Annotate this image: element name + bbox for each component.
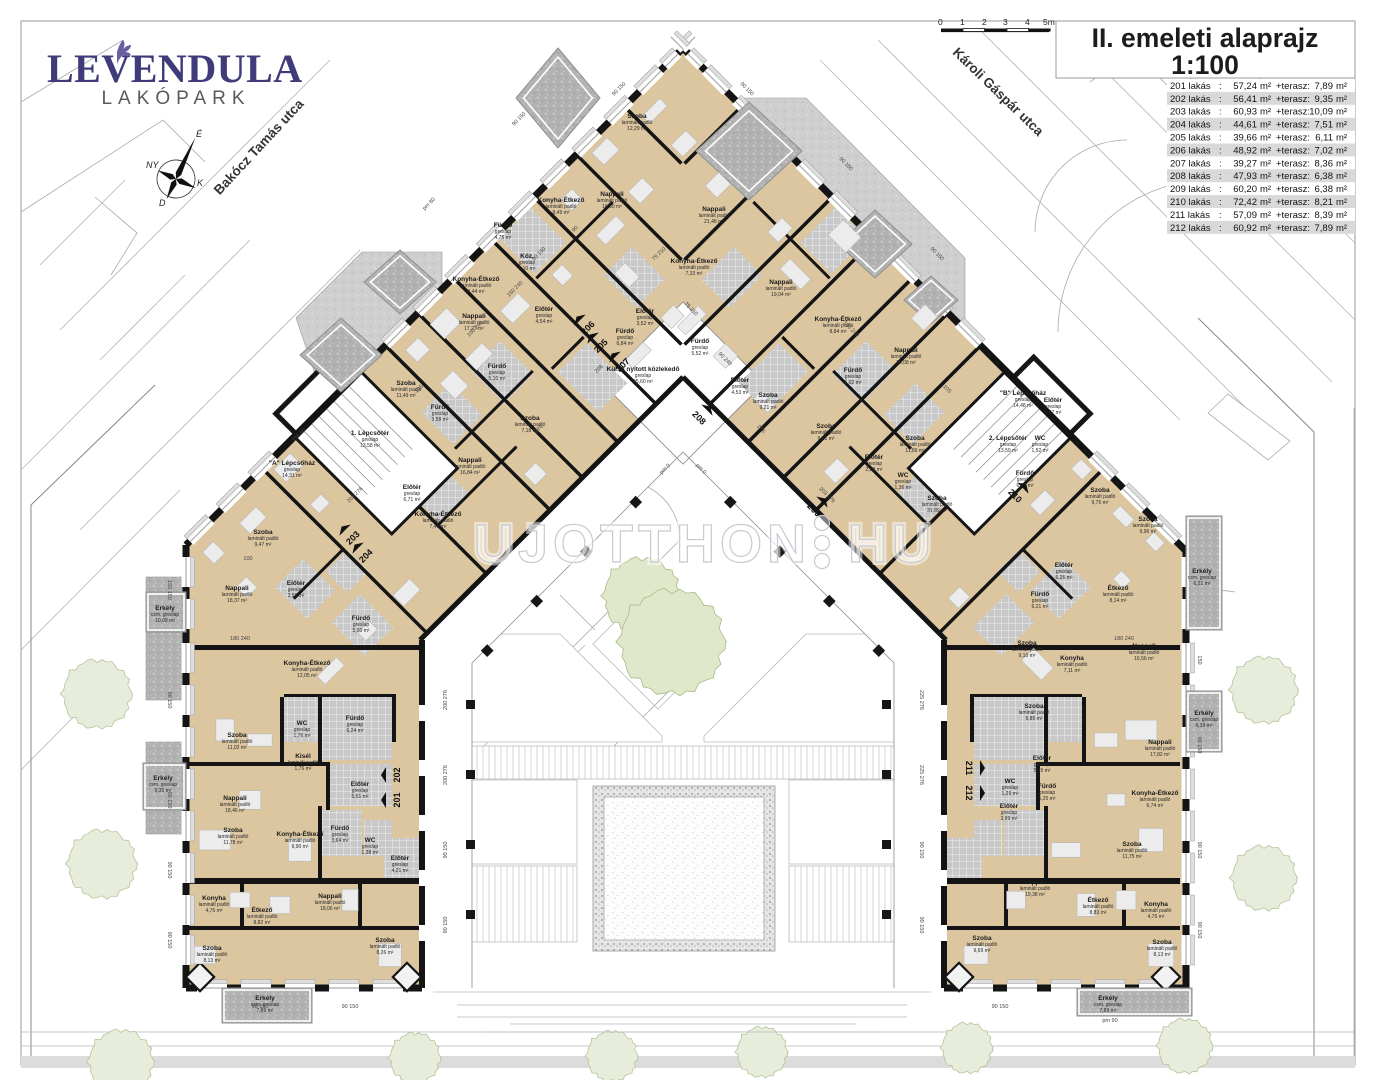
svg-text:9,35: 9,35: [1315, 94, 1334, 105]
svg-text:203 lakás: 203 lakás: [1170, 107, 1211, 118]
svg-text:Fürdő: Fürdő: [616, 328, 634, 335]
svg-text:90 150: 90 150: [1196, 737, 1202, 754]
svg-text:m²: m²: [1260, 81, 1271, 92]
svg-text:Étkező: Étkező: [1108, 583, 1129, 592]
svg-text:+terasz:: +terasz:: [1276, 120, 1310, 131]
svg-text:150: 150: [1196, 655, 1202, 664]
svg-text:207 lakás: 207 lakás: [1170, 158, 1211, 169]
svg-text:212: 212: [964, 785, 974, 800]
svg-text:4,76 m²: 4,76 m²: [206, 908, 223, 914]
svg-text:Fürdő: Fürdő: [844, 367, 862, 374]
svg-text:II. emeleti alaprajz: II. emeleti alaprajz: [1092, 23, 1319, 53]
svg-text:+terasz:: +terasz:: [1276, 223, 1310, 234]
svg-text:LEVENDULA: LEVENDULA: [47, 46, 303, 91]
svg-text:14,31 m²: 14,31 m²: [282, 473, 302, 479]
svg-text:202: 202: [392, 767, 402, 782]
svg-text:Erkély: Erkély: [155, 605, 175, 612]
svg-text:205 lakás: 205 lakás: [1170, 133, 1211, 144]
svg-text:1. Lépcsőtér: 1. Lépcsőtér: [351, 430, 390, 437]
svg-text:9,90 m²: 9,90 m²: [292, 844, 309, 850]
svg-text:+terasz:: +terasz:: [1276, 107, 1310, 118]
svg-text:Fürdő: Fürdő: [1016, 470, 1034, 477]
svg-text:m²: m²: [1336, 210, 1347, 221]
svg-text:1,10 m²: 1,10 m²: [519, 266, 536, 272]
svg-text:60,92: 60,92: [1233, 223, 1257, 234]
svg-text:8,82 m²: 8,82 m²: [254, 920, 271, 926]
svg-text:7,89 m²: 7,89 m²: [1100, 1008, 1117, 1014]
svg-text:9,75 m²: 9,75 m²: [1092, 500, 1109, 506]
svg-text:11,78 m²: 11,78 m²: [223, 840, 243, 846]
svg-text:9,96 m²: 9,96 m²: [1140, 529, 1157, 535]
svg-text:Konyha-Étkező: Konyha-Étkező: [815, 314, 862, 323]
svg-text:Fürdő: Fürdő: [346, 715, 364, 722]
svg-text:Étkező: Étkező: [252, 905, 273, 914]
svg-text:6,38: 6,38: [1315, 184, 1334, 195]
svg-text:Konyha-Étkező: Konyha-Étkező: [415, 509, 462, 518]
svg-text:Konyha-Étkező: Konyha-Étkező: [453, 274, 500, 283]
svg-text:Fürdő: Fürdő: [1038, 783, 1056, 790]
svg-text:Előtér: Előtér: [287, 580, 306, 587]
svg-text:90 150: 90 150: [166, 692, 172, 709]
svg-text:10,09: 10,09: [1309, 107, 1333, 118]
svg-text:18,37 m²: 18,37 m²: [227, 598, 247, 604]
svg-text::: :: [1219, 120, 1222, 131]
svg-text:8,36: 8,36: [1315, 158, 1334, 169]
svg-text:3,97 m²: 3,97 m²: [1045, 410, 1062, 416]
svg-text:9,10 m²: 9,10 m²: [1019, 653, 1036, 659]
svg-text:8,13 m²: 8,13 m²: [204, 958, 221, 964]
svg-text:+terasz:: +terasz:: [1276, 158, 1310, 169]
svg-text:Szoba: Szoba: [375, 937, 395, 944]
svg-text:LAKÓPARK: LAKÓPARK: [101, 87, 250, 109]
svg-text:8,26 m²: 8,26 m²: [377, 950, 394, 956]
svg-text:7,02: 7,02: [1315, 145, 1334, 156]
svg-text:44,61: 44,61: [1233, 120, 1257, 131]
svg-text:Előtér: Előtér: [391, 855, 410, 862]
svg-text:m²: m²: [1336, 133, 1347, 144]
svg-text:m²: m²: [1260, 171, 1271, 182]
svg-text:90 150: 90 150: [918, 842, 924, 859]
svg-text:17,82 m²: 17,82 m²: [1150, 752, 1170, 758]
svg-text:60,93: 60,93: [1233, 107, 1257, 118]
svg-text:Előtér: Előtér: [535, 306, 554, 313]
svg-text:Nappali: Nappali: [223, 795, 247, 802]
svg-text:Konyha-Étkező: Konyha-Étkező: [538, 195, 585, 204]
svg-text:150 150: 150 150: [166, 580, 172, 600]
svg-text:4,21 m²: 4,21 m²: [392, 868, 409, 874]
svg-text:Szoba: Szoba: [1152, 939, 1172, 946]
svg-text:90 150: 90 150: [1196, 922, 1202, 939]
svg-text:212 lakás: 212 lakás: [1170, 223, 1211, 234]
svg-text:Szoba: Szoba: [227, 732, 247, 739]
svg-text:m²: m²: [1336, 171, 1347, 182]
svg-text:4,53 m²: 4,53 m²: [732, 390, 749, 396]
svg-text:11,75 m²: 11,75 m²: [1122, 854, 1142, 860]
svg-text::: :: [1219, 223, 1222, 234]
svg-text:2,38 m²: 2,38 m²: [866, 467, 883, 473]
svg-text:57,09: 57,09: [1233, 210, 1257, 221]
svg-text:Nappali: Nappali: [1132, 643, 1156, 650]
svg-text:7,51: 7,51: [1315, 120, 1334, 131]
svg-text:+terasz:: +terasz:: [1276, 81, 1310, 92]
svg-text:8,49 m²: 8,49 m²: [553, 210, 570, 216]
svg-text:m²: m²: [1336, 107, 1347, 118]
svg-text:m²: m²: [1260, 158, 1271, 169]
svg-text:6,84 m²: 6,84 m²: [617, 341, 634, 347]
svg-text:57,24: 57,24: [1233, 81, 1257, 92]
svg-text:+terasz:: +terasz:: [1276, 184, 1310, 195]
svg-text:3,44 m²: 3,44 m²: [468, 289, 485, 295]
svg-text:6,38: 6,38: [1315, 171, 1334, 182]
svg-text:18,06 m²: 18,06 m²: [320, 906, 340, 912]
svg-text:206 lakás: 206 lakás: [1170, 145, 1211, 156]
svg-text:6,39 m²: 6,39 m²: [1196, 723, 1213, 729]
svg-text:pm 90: pm 90: [1102, 1018, 1117, 1024]
svg-text:"B" Lépcsőház: "B" Lépcsőház: [1000, 390, 1047, 397]
svg-text:3,52 m²: 3,52 m²: [637, 321, 654, 327]
svg-text:Nappali: Nappali: [600, 191, 624, 198]
svg-text:+terasz:: +terasz:: [1276, 197, 1310, 208]
svg-text:90 150: 90 150: [918, 917, 924, 934]
svg-text:m²: m²: [1260, 94, 1271, 105]
svg-text:Nappali: Nappali: [1148, 739, 1172, 746]
svg-text:+terasz:: +terasz:: [1276, 133, 1310, 144]
svg-text:Nappali: Nappali: [458, 457, 482, 464]
svg-text:7,33 m²: 7,33 m²: [686, 271, 703, 277]
svg-text:90 150: 90 150: [443, 917, 449, 934]
svg-text:5,25 m²: 5,25 m²: [1039, 796, 1056, 802]
svg-text:Konyha-Étkező: Konyha-Étkező: [277, 829, 324, 838]
svg-text:m²: m²: [1336, 197, 1347, 208]
svg-text:90 150: 90 150: [252, 1004, 269, 1010]
svg-text:19,38 m²: 19,38 m²: [1025, 892, 1045, 898]
svg-text:14,48 m²: 14,48 m²: [1013, 403, 1033, 409]
svg-text:Szoba: Szoba: [905, 435, 925, 442]
svg-text:5m: 5m: [1043, 17, 1055, 27]
svg-text:16,90 m²: 16,90 m²: [602, 204, 622, 210]
svg-text:9,21 m²: 9,21 m²: [818, 436, 835, 442]
svg-text:9,85 m²: 9,85 m²: [1026, 716, 1043, 722]
svg-text:m²: m²: [1336, 158, 1347, 169]
svg-text:Nappali: Nappali: [318, 893, 342, 900]
svg-text:1,29 m²: 1,29 m²: [1002, 791, 1019, 797]
svg-text:90 150: 90 150: [166, 792, 172, 809]
svg-text:5,51 m²: 5,51 m²: [352, 794, 369, 800]
svg-text:11,89 m²: 11,89 m²: [905, 448, 925, 454]
svg-text:Nappali: Nappali: [769, 279, 793, 286]
svg-text:Szoba: Szoba: [758, 392, 778, 399]
svg-text:Konyha: Konyha: [1060, 655, 1084, 662]
svg-text:39,66: 39,66: [1233, 133, 1257, 144]
svg-text:Előtér: Előtér: [403, 484, 422, 491]
svg-text:m²: m²: [1260, 210, 1271, 221]
svg-text:1:100: 1:100: [1171, 50, 1239, 80]
svg-text:Konyha: Konyha: [1144, 901, 1168, 908]
svg-text::: :: [1219, 184, 1222, 195]
svg-text:Szoba: Szoba: [202, 945, 222, 952]
svg-text:12,29 m²: 12,29 m²: [627, 126, 647, 132]
svg-text:201 lakás: 201 lakás: [1170, 81, 1211, 92]
svg-text:Erkély: Erkély: [153, 775, 173, 782]
svg-text:Nappali: Nappali: [702, 206, 726, 213]
svg-text:Fürdő: Fürdő: [691, 338, 709, 345]
svg-text:8,84 m²: 8,84 m²: [830, 329, 847, 335]
svg-text:Fürdő: Fürdő: [1031, 591, 1049, 598]
svg-text:1,52 m²: 1,52 m²: [1032, 448, 1049, 454]
svg-text:m²: m²: [1260, 197, 1271, 208]
svg-text:7,11 m²: 7,11 m²: [1064, 668, 1081, 674]
svg-text::: :: [1219, 81, 1222, 92]
svg-text:2. Lépcsőtér: 2. Lépcsőtér: [989, 435, 1028, 442]
svg-text:90 150: 90 150: [342, 1004, 359, 1010]
svg-text:m²: m²: [1260, 223, 1271, 234]
svg-text:"A" Lépcsőház: "A" Lépcsőház: [269, 460, 316, 467]
svg-text::: :: [1219, 133, 1222, 144]
svg-text:3,95 m²: 3,95 m²: [288, 593, 305, 599]
svg-text:208 lakás: 208 lakás: [1170, 171, 1211, 182]
svg-text:Nappali: Nappali: [1023, 879, 1047, 886]
svg-text:D: D: [159, 198, 166, 208]
svg-text:Erkély: Erkély: [255, 995, 275, 1002]
svg-text:95,60 m²: 95,60 m²: [633, 379, 653, 385]
svg-text:Előtér: Előtér: [1055, 562, 1074, 569]
svg-text:12,05 m²: 12,05 m²: [297, 673, 317, 679]
svg-text:HU: HU: [848, 514, 936, 574]
svg-text:7,89: 7,89: [1315, 223, 1334, 234]
svg-text:47,93: 47,93: [1233, 171, 1257, 182]
svg-text:Előtér: Előtér: [1000, 803, 1019, 810]
svg-text:m²: m²: [1336, 120, 1347, 131]
svg-text:Konyha-Étkező: Konyha-Étkező: [284, 658, 331, 667]
svg-text:1,76 m²: 1,76 m²: [295, 766, 312, 772]
svg-text:WC: WC: [365, 837, 376, 844]
svg-text:225 276: 225 276: [918, 765, 924, 785]
svg-text:Fürdő: Fürdő: [494, 222, 512, 229]
svg-text:90 150: 90 150: [166, 862, 172, 879]
svg-text:3: 3: [1003, 17, 1008, 27]
svg-text:200 276: 200 276: [443, 690, 449, 710]
svg-text::: :: [1219, 171, 1222, 182]
svg-text:48,92: 48,92: [1233, 145, 1257, 156]
svg-text:WC: WC: [898, 472, 909, 479]
svg-text:m²: m²: [1260, 145, 1271, 156]
svg-text:5,52 m²: 5,52 m²: [692, 351, 709, 357]
svg-text:19,04 m²: 19,04 m²: [771, 292, 791, 298]
svg-text:7,89: 7,89: [1315, 81, 1334, 92]
svg-text:+terasz:: +terasz:: [1276, 210, 1310, 221]
svg-text:1: 1: [960, 17, 965, 27]
svg-text:Étkező: Étkező: [1088, 895, 1109, 904]
svg-text:90 150: 90 150: [992, 1004, 1009, 1010]
svg-text::: :: [1219, 210, 1222, 221]
svg-text:m²: m²: [1336, 223, 1347, 234]
svg-text:0: 0: [938, 17, 943, 27]
svg-text:211: 211: [964, 761, 974, 776]
svg-text:É: É: [196, 129, 203, 139]
svg-text:Szoba: Szoba: [396, 380, 416, 387]
svg-text:4,54 m²: 4,54 m²: [536, 319, 553, 325]
svg-text:6,24 m²: 6,24 m²: [347, 728, 364, 734]
svg-text:56,41: 56,41: [1233, 94, 1257, 105]
svg-text:8,13 m²: 8,13 m²: [1154, 952, 1171, 958]
svg-text:11,49 m²: 11,49 m²: [396, 393, 416, 399]
svg-text:9,47 m²: 9,47 m²: [255, 542, 272, 548]
svg-text:Szoba: Szoba: [1122, 841, 1142, 848]
svg-text:+terasz:: +terasz:: [1276, 171, 1310, 182]
svg-text:K: K: [197, 178, 204, 188]
svg-text:18,46 m²: 18,46 m²: [225, 808, 245, 814]
svg-text:Szoba: Szoba: [627, 113, 647, 120]
svg-text:4,76 m²: 4,76 m²: [1148, 914, 1165, 920]
svg-text:Erkély: Erkély: [1098, 995, 1118, 1002]
svg-text:39,27: 39,27: [1233, 158, 1257, 169]
svg-text:8,39: 8,39: [1315, 210, 1334, 221]
svg-text:5,35 m²: 5,35 m²: [1034, 768, 1051, 774]
svg-text:Nappali: Nappali: [225, 585, 249, 592]
svg-text:m²: m²: [1260, 120, 1271, 131]
svg-text:225 276: 225 276: [918, 690, 924, 710]
svg-text:Előtér: Előtér: [1044, 397, 1063, 404]
svg-text:8,21: 8,21: [1315, 197, 1334, 208]
svg-text:m²: m²: [1336, 81, 1347, 92]
svg-text::: :: [1219, 197, 1222, 208]
svg-text:9,69 m²: 9,69 m²: [974, 948, 991, 954]
svg-text:16,08 m²: 16,08 m²: [896, 360, 916, 366]
svg-text:6,74 m²: 6,74 m²: [1147, 803, 1164, 809]
svg-text:Fürdő: Fürdő: [431, 404, 449, 411]
svg-text:WC: WC: [1035, 435, 1046, 442]
svg-text:Előtér: Előtér: [636, 308, 655, 315]
svg-text:11,02 m²: 11,02 m²: [227, 745, 247, 751]
svg-text:Szoba: Szoba: [927, 495, 947, 502]
svg-text:Konyha-Étkező: Konyha-Étkező: [1132, 788, 1179, 797]
svg-text:13,59 m²: 13,59 m²: [998, 448, 1018, 454]
svg-text:180 240: 180 240: [1114, 636, 1134, 642]
svg-text:Szoba: Szoba: [816, 423, 836, 430]
svg-text:5,00 m²: 5,00 m²: [353, 628, 370, 634]
svg-text:Előtér: Előtér: [731, 377, 750, 384]
svg-text:1,36 m²: 1,36 m²: [895, 485, 912, 491]
svg-text:4,75 m²: 4,75 m²: [495, 235, 512, 241]
svg-text:6,02 m²: 6,02 m²: [845, 380, 862, 386]
svg-text:Fürdő: Fürdő: [352, 615, 370, 622]
svg-text:NY: NY: [146, 160, 159, 170]
svg-text:72,42: 72,42: [1233, 197, 1257, 208]
svg-text:8,83 m²: 8,83 m²: [1090, 910, 1107, 916]
svg-text:202 lakás: 202 lakás: [1170, 94, 1211, 105]
svg-text:Szoba: Szoba: [1017, 640, 1037, 647]
svg-text:Nappali: Nappali: [894, 347, 918, 354]
svg-text:+terasz:: +terasz:: [1276, 145, 1310, 156]
svg-text:Fürdő: Fürdő: [488, 363, 506, 370]
svg-text:90 150: 90 150: [1196, 842, 1202, 859]
svg-text:16,84 m²: 16,84 m²: [460, 470, 480, 476]
svg-text:Erkély: Erkély: [1192, 568, 1212, 575]
svg-text:2: 2: [982, 17, 987, 27]
svg-text:Nappali: Nappali: [462, 313, 486, 320]
svg-text:Szoba: Szoba: [223, 827, 243, 834]
svg-text:211 lakás: 211 lakás: [1170, 210, 1210, 221]
svg-text:5,10 m²: 5,10 m²: [489, 376, 506, 382]
svg-text:3,64 m²: 3,64 m²: [332, 838, 349, 844]
svg-text:16,56 m²: 16,56 m²: [1134, 656, 1154, 662]
svg-text:m²: m²: [1336, 145, 1347, 156]
svg-text:UJOTTHON: UJOTTHON: [474, 514, 811, 574]
svg-text:210 lakás: 210 lakás: [1170, 197, 1211, 208]
svg-text:90 150: 90 150: [443, 842, 449, 859]
svg-text:WC: WC: [297, 720, 308, 727]
svg-text:m²: m²: [1260, 133, 1271, 144]
svg-text:Szoba: Szoba: [1090, 487, 1110, 494]
svg-text:209 lakás: 209 lakás: [1170, 184, 1211, 195]
svg-text:3,99 m²: 3,99 m²: [1001, 816, 1018, 822]
svg-text:+terasz:: +terasz:: [1276, 94, 1310, 105]
svg-text:90 150: 90 150: [166, 932, 172, 949]
svg-text:6,26 m²: 6,26 m²: [1056, 575, 1073, 581]
svg-text:m²: m²: [1336, 184, 1347, 195]
svg-text:m²: m²: [1260, 184, 1271, 195]
svg-text:Konyha: Konyha: [202, 895, 226, 902]
svg-text:21,48 m²: 21,48 m²: [704, 219, 724, 225]
svg-text:m²: m²: [1260, 107, 1271, 118]
svg-text:201: 201: [392, 792, 402, 807]
svg-text:Erkély: Erkély: [1194, 710, 1214, 717]
svg-text:7,41 m²: 7,41 m²: [430, 524, 447, 530]
svg-text:1,38 m²: 1,38 m²: [362, 850, 379, 856]
svg-text:Szoba: Szoba: [520, 415, 540, 422]
svg-text:Kisél: Kisél: [295, 753, 311, 760]
svg-text::: :: [1219, 145, 1222, 156]
svg-text:204 lakás: 204 lakás: [1170, 120, 1211, 131]
svg-text:6,71 m²: 6,71 m²: [404, 497, 421, 503]
svg-text:Fürdő: Fürdő: [331, 825, 349, 832]
svg-text:100: 100: [243, 556, 252, 562]
svg-text:Előtér: Előtér: [351, 781, 370, 788]
svg-text::: :: [1219, 94, 1222, 105]
svg-text:6,11: 6,11: [1315, 133, 1333, 144]
svg-text:Szoba: Szoba: [972, 935, 992, 942]
svg-text:180 240: 180 240: [230, 636, 250, 642]
svg-text:1,76 m²: 1,76 m²: [294, 733, 311, 739]
svg-text:m²: m²: [1336, 94, 1347, 105]
svg-text:WC: WC: [1005, 778, 1016, 785]
svg-text:Szoba: Szoba: [1024, 703, 1044, 710]
svg-text:3,58 m²: 3,58 m²: [432, 417, 449, 423]
svg-text:9,21 m²: 9,21 m²: [760, 405, 777, 411]
svg-text::: :: [1219, 107, 1222, 118]
svg-text:60,20: 60,20: [1233, 184, 1257, 195]
svg-text:10,09 m²: 10,09 m²: [155, 618, 175, 624]
svg-text:13,58 m²: 13,58 m²: [360, 443, 380, 449]
svg-text:6,21 m²: 6,21 m²: [1194, 581, 1211, 587]
svg-text:200 276: 200 276: [443, 765, 449, 785]
svg-text:4: 4: [1025, 17, 1030, 27]
svg-text:8,14 m²: 8,14 m²: [1110, 598, 1127, 604]
svg-text:Konyha-Étkező: Konyha-Étkező: [671, 256, 718, 265]
svg-text:Szoba: Szoba: [253, 529, 273, 536]
svg-text:Előtér: Előtér: [1033, 755, 1052, 762]
svg-text:6,21 m²: 6,21 m²: [1032, 604, 1049, 610]
svg-text::: :: [1219, 158, 1222, 169]
svg-text:Előtér: Előtér: [865, 454, 884, 461]
svg-text:Szoba: Szoba: [1138, 516, 1158, 523]
